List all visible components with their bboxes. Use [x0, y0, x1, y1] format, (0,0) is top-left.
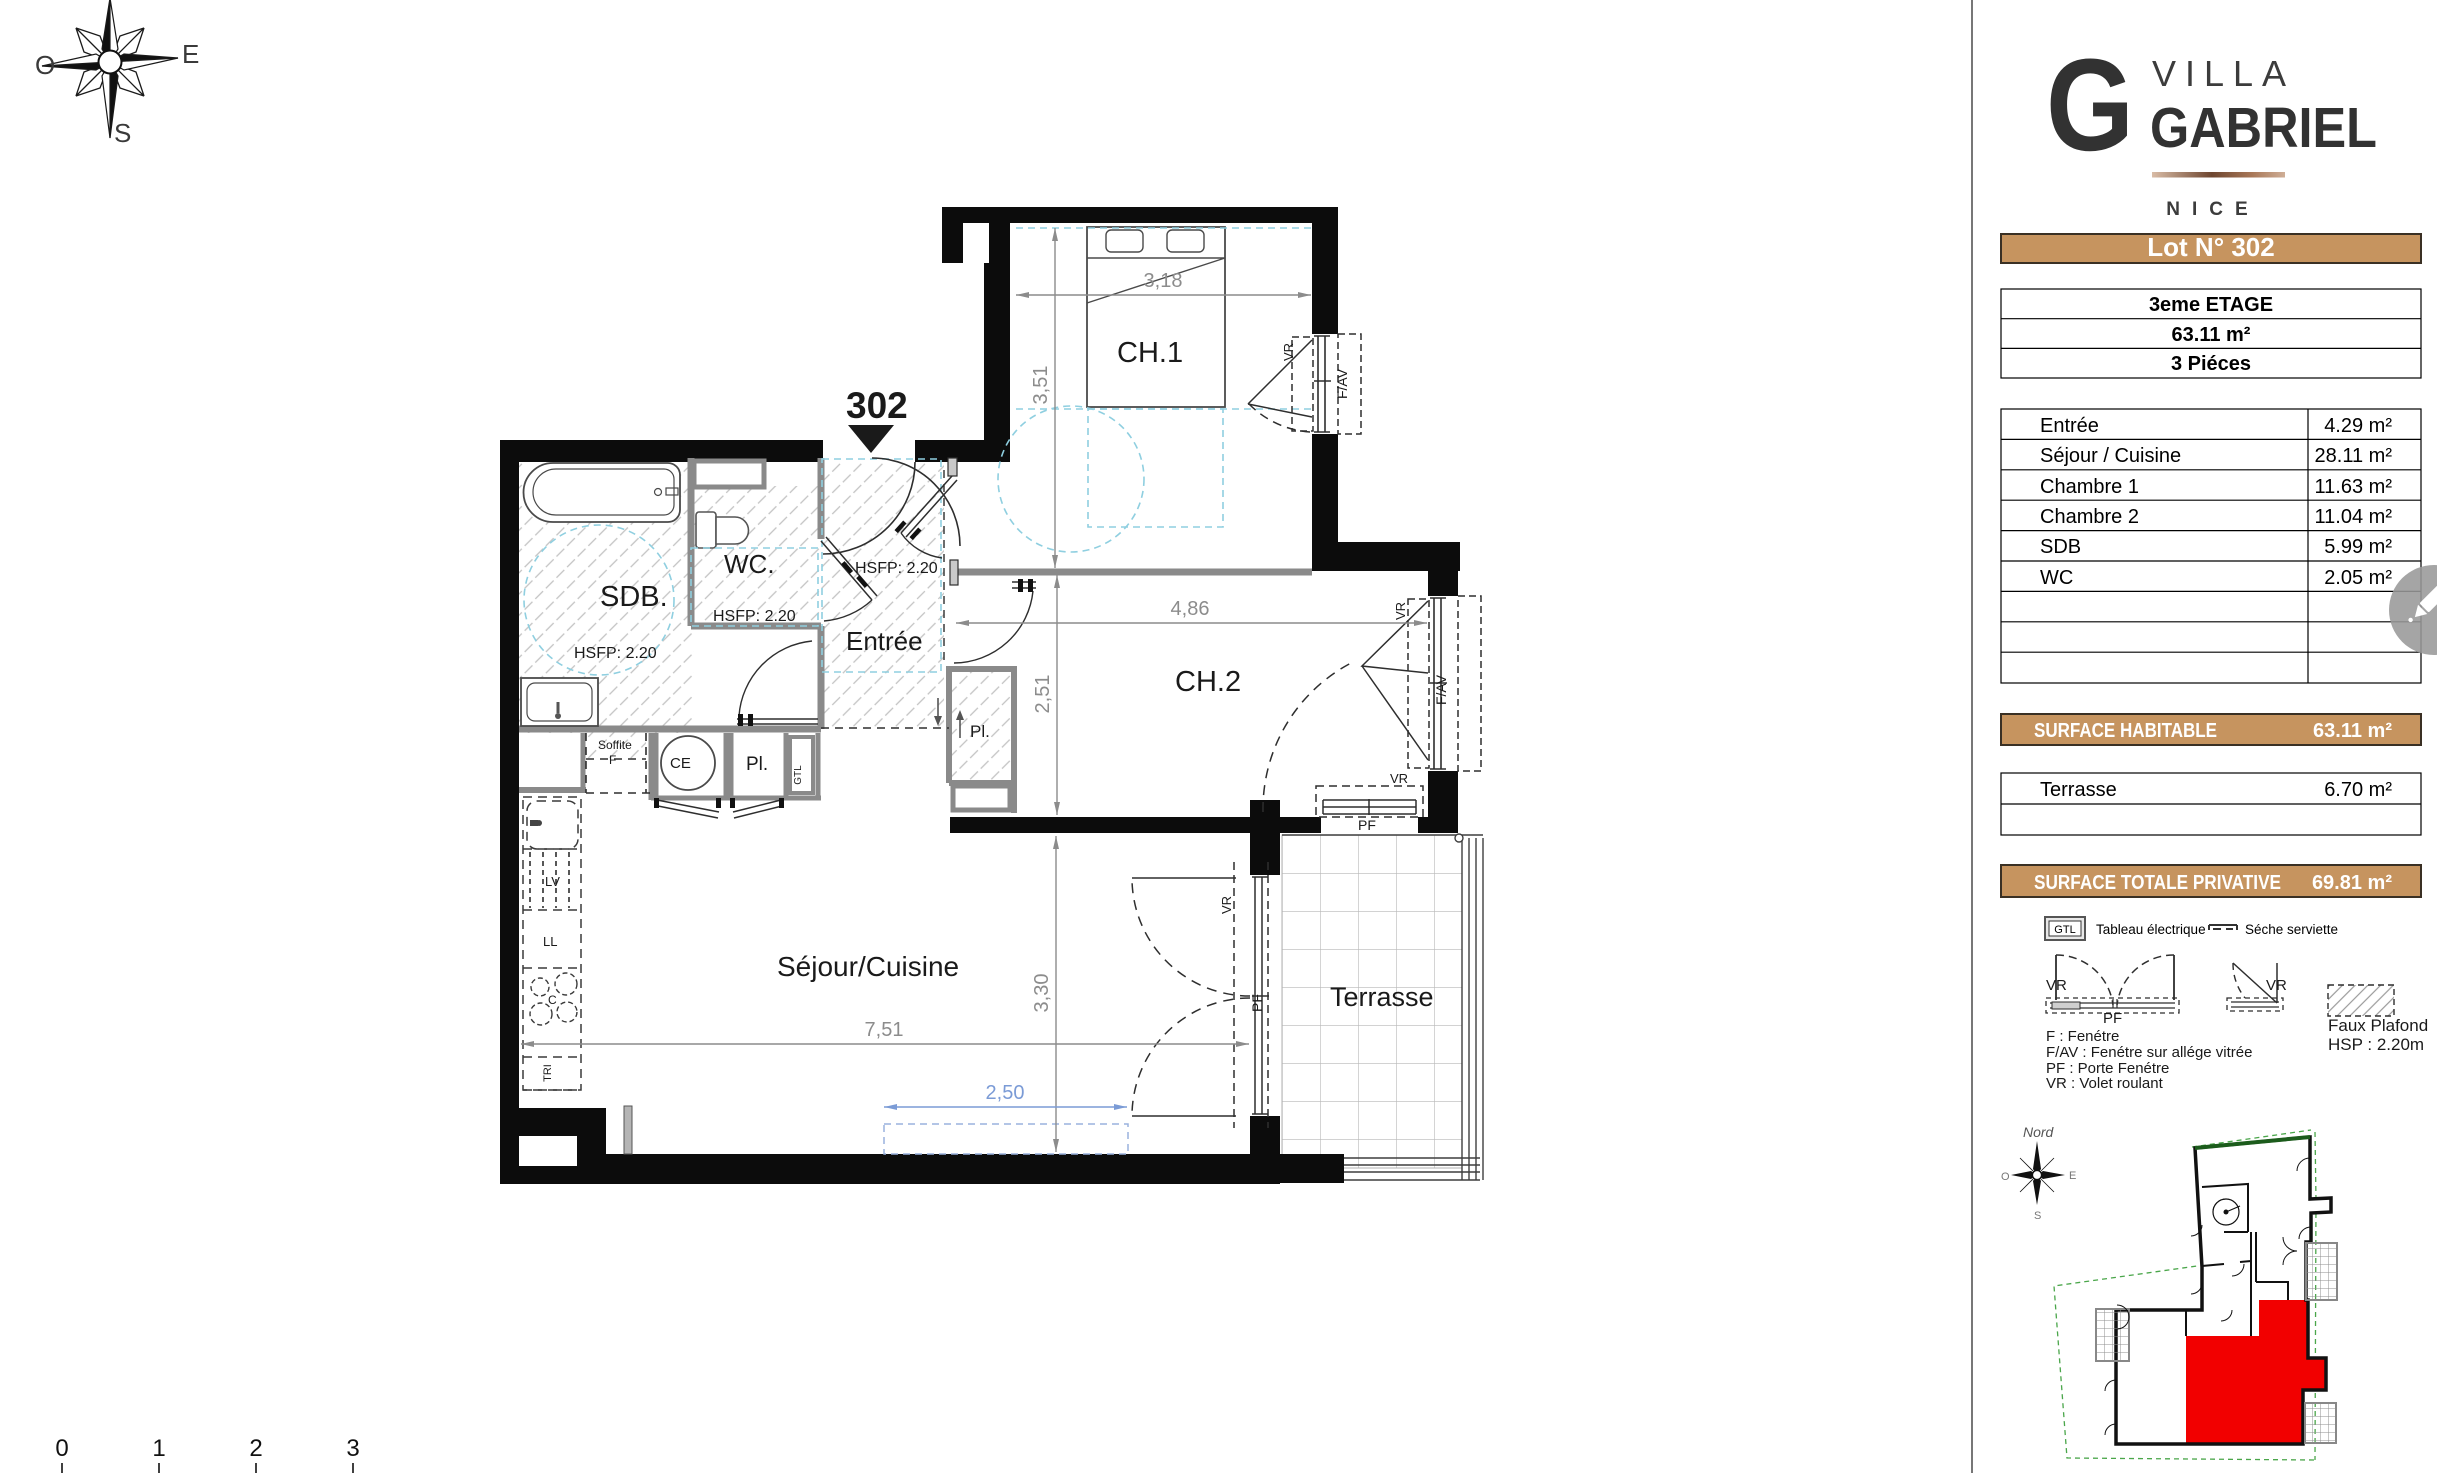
svg-text:O: O: [35, 50, 55, 80]
svg-text:Pl.: Pl.: [970, 722, 990, 741]
svg-text:Séjour/Cuisine: Séjour/Cuisine: [777, 951, 959, 982]
svg-text:VR: VR: [2266, 977, 2287, 994]
svg-text:2,50: 2,50: [986, 1082, 1025, 1104]
svg-text:SURFACE HABITABLE: SURFACE HABITABLE: [2034, 720, 2217, 742]
svg-text:PF: PF: [1358, 817, 1376, 833]
svg-text:GTL: GTL: [2054, 924, 2075, 936]
svg-text:VR: VR: [1393, 602, 1408, 620]
svg-text:F/AV: F/AV: [1433, 674, 1449, 705]
svg-text:C: C: [548, 993, 557, 1007]
svg-text:CH.1: CH.1: [1117, 337, 1183, 369]
svg-text:3,51: 3,51: [1030, 366, 1052, 405]
svg-text:2,51: 2,51: [1032, 675, 1054, 714]
svg-text:302: 302: [846, 385, 908, 426]
svg-text:SDB: SDB: [2040, 536, 2081, 558]
svg-text:E: E: [2069, 1170, 2076, 1182]
svg-text:F/AV : Fenétre sur allége vitr: F/AV : Fenétre sur allége vitrée: [2046, 1044, 2252, 1061]
svg-text:Lot N° 302: Lot N° 302: [2147, 232, 2274, 262]
svg-text:28.11 m²: 28.11 m²: [2315, 445, 2393, 467]
svg-text:VR: VR: [1390, 771, 1408, 786]
svg-text:5.99 m²: 5.99 m²: [2324, 536, 2392, 558]
svg-text:Entrée: Entrée: [846, 626, 923, 656]
svg-text:Séjour / Cuisine: Séjour / Cuisine: [2040, 445, 2181, 467]
svg-text:Faux Plafond: Faux Plafond: [2328, 1016, 2428, 1035]
svg-text:3,18: 3,18: [1144, 270, 1183, 292]
svg-text:0: 0: [55, 1435, 68, 1462]
svg-text:3,30: 3,30: [1031, 974, 1053, 1013]
svg-text:Tableau électrique: Tableau électrique: [2096, 922, 2206, 937]
svg-text:PF: PF: [1249, 994, 1265, 1012]
svg-text:63.11 m²: 63.11 m²: [2172, 324, 2251, 346]
svg-text:HSFP: 2.20: HSFP: 2.20: [713, 608, 796, 625]
svg-text:CE: CE: [670, 755, 691, 772]
svg-text:CH.2: CH.2: [1175, 666, 1241, 698]
svg-text:F: F: [609, 753, 616, 767]
svg-text:3eme ETAGE: 3eme ETAGE: [2149, 294, 2273, 316]
svg-text:2.05 m²: 2.05 m²: [2324, 567, 2392, 589]
svg-text:Entrée: Entrée: [2040, 415, 2099, 437]
svg-text:VR: VR: [2046, 977, 2067, 994]
svg-text:4,86: 4,86: [1171, 598, 1210, 620]
svg-text:VR: VR: [1219, 896, 1234, 914]
svg-text:S: S: [114, 118, 131, 148]
svg-text:4.29 m²: 4.29 m²: [2324, 415, 2392, 437]
svg-text:SDB.: SDB.: [600, 581, 668, 613]
svg-text:SURFACE TOTALE PRIVATIVE: SURFACE TOTALE PRIVATIVE: [2034, 872, 2281, 894]
svg-text:VR : Volet roulant: VR : Volet roulant: [2046, 1075, 2164, 1092]
svg-text:F/AV: F/AV: [1334, 368, 1350, 399]
svg-text:GABRIEL: GABRIEL: [2150, 96, 2377, 160]
svg-text:1: 1: [152, 1435, 165, 1462]
svg-text:HSP : 2.20m: HSP : 2.20m: [2328, 1035, 2424, 1054]
svg-text:PF: PF: [2103, 1010, 2122, 1027]
svg-text:69.81 m²: 69.81 m²: [2312, 872, 2392, 894]
svg-text:F : Fenétre: F : Fenétre: [2046, 1028, 2119, 1045]
svg-text:LL: LL: [543, 934, 557, 949]
svg-text:Nord: Nord: [2023, 1124, 2055, 1140]
svg-text:Chambre 1: Chambre 1: [2040, 476, 2139, 498]
svg-text:WC: WC: [2040, 567, 2073, 589]
svg-text:Chambre 2: Chambre 2: [2040, 506, 2139, 528]
svg-text:11.63 m²: 11.63 m²: [2315, 476, 2393, 498]
svg-text:Terrasse: Terrasse: [1330, 982, 1434, 1012]
svg-text:11.04 m²: 11.04 m²: [2315, 506, 2393, 528]
svg-text:3 Piéces: 3 Piéces: [2171, 353, 2251, 375]
svg-text:LV: LV: [545, 874, 560, 889]
svg-text:TRI: TRI: [542, 1064, 554, 1082]
svg-text:2: 2: [249, 1435, 262, 1462]
svg-text:HSFP: 2.20: HSFP: 2.20: [855, 560, 938, 577]
svg-text:Terrasse: Terrasse: [2040, 779, 2117, 801]
svg-text:O: O: [2001, 1171, 2010, 1183]
svg-text:Soffite: Soffite: [598, 738, 632, 752]
svg-text:GTL: GTL: [793, 765, 804, 785]
svg-text:WC.: WC.: [724, 549, 775, 579]
svg-text:7,51: 7,51: [865, 1019, 904, 1041]
svg-text:3: 3: [346, 1435, 359, 1462]
svg-text:NICE: NICE: [2166, 199, 2259, 220]
svg-text:HSFP: 2.20: HSFP: 2.20: [574, 645, 657, 662]
svg-text:VILLA: VILLA: [2152, 53, 2286, 94]
svg-text:E: E: [182, 39, 199, 69]
svg-text:63.11 m²: 63.11 m²: [2313, 720, 2392, 742]
svg-text:6.70 m²: 6.70 m²: [2324, 779, 2392, 801]
svg-text:VR: VR: [1281, 343, 1296, 361]
svg-text:S: S: [2034, 1210, 2041, 1222]
svg-text:Séche serviette: Séche serviette: [2245, 922, 2338, 937]
svg-text:G: G: [2046, 31, 2134, 178]
svg-text:Pl.: Pl.: [746, 754, 768, 775]
